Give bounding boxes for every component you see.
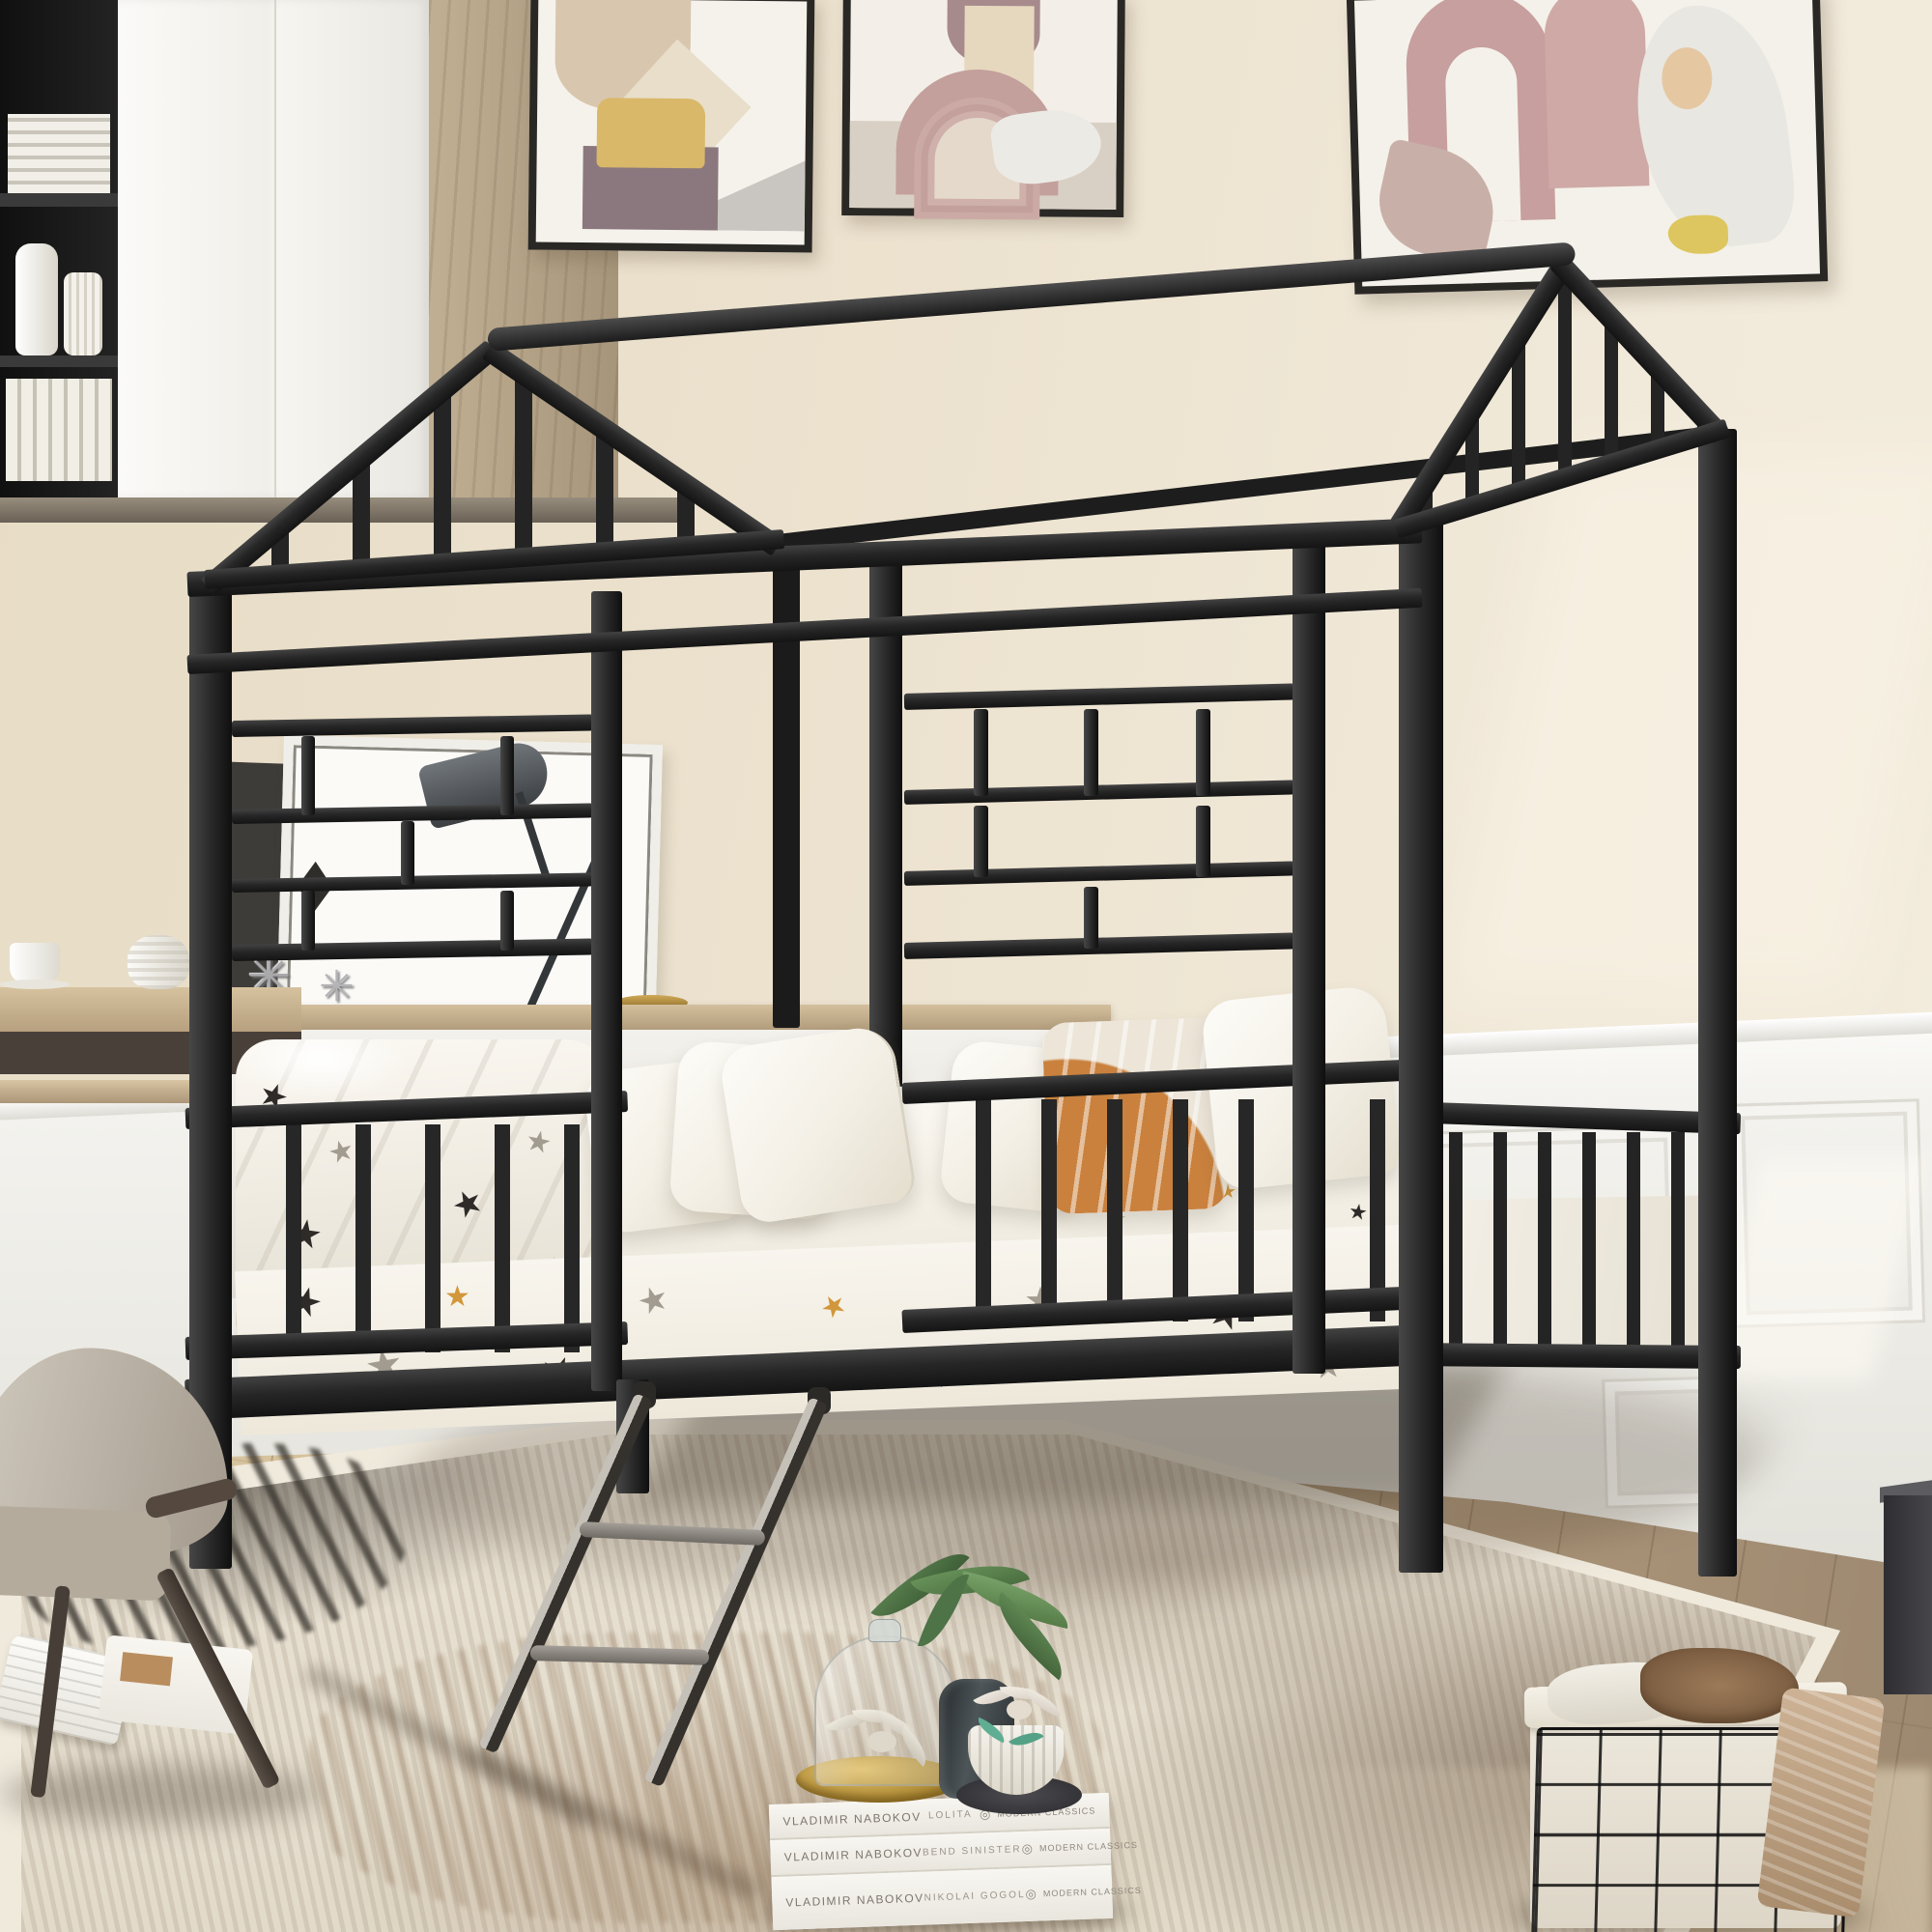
art3-pink-arch-right: [1544, 0, 1650, 188]
book-author: VLADIMIR NABOKOV: [785, 1891, 924, 1910]
footboard-slats: [1418, 1132, 1727, 1354]
footboard-bottom-rail: [1403, 1343, 1741, 1369]
headboard-window-mullion: [500, 891, 514, 951]
desk-shelf-lower: [0, 1080, 191, 1103]
shelf-books-horizontal: [8, 114, 110, 193]
jacks-sculpture-silver: ✳: [319, 966, 355, 1009]
succulent-center: [1007, 1700, 1032, 1719]
desk-top: [0, 987, 301, 1032]
bed-back-left-post: [773, 549, 800, 1028]
window-mullion-right: [1084, 709, 1098, 796]
headboard-window-mullion: [301, 736, 315, 815]
headboard-window-mullion: [301, 891, 315, 951]
window-mullion-right: [1084, 887, 1098, 949]
art1-yellow-figure: [597, 98, 706, 168]
art-frame-3: [1347, 0, 1829, 295]
headboard-window-mullion: [500, 736, 514, 815]
book-stack: VLADIMIR NABOKOV LOLITA ◎MODERN CLASSICS…: [769, 1793, 1113, 1930]
window-mullion-right: [1196, 806, 1210, 877]
cloche-knob: [868, 1619, 901, 1642]
window-mullion-right: [1196, 709, 1210, 796]
art-frame-1: [528, 0, 815, 253]
bed-post-front-right: [1399, 522, 1443, 1573]
pillow-white: [718, 1023, 919, 1226]
shelf-vase-white: [15, 243, 58, 355]
shelf-books-vertical: [6, 379, 112, 481]
nightstand-body: [1884, 1495, 1932, 1694]
desk-vase: [128, 935, 189, 989]
book-title: LOLITA: [928, 1809, 973, 1822]
guardrail-slats-left: [232, 1124, 593, 1352]
shelf-board: [0, 355, 118, 367]
book-author: VLADIMIR NABOKOV: [782, 1809, 922, 1828]
headboard-window-mullion: [401, 821, 414, 885]
cabinet-white: [118, 0, 429, 497]
art3-yellow-shoe: [1667, 214, 1728, 255]
cup-saucer: [0, 980, 70, 989]
publisher-logo-icon: ◎: [1021, 1841, 1034, 1857]
window-mullion-right: [974, 806, 988, 877]
publisher-name: MODERN CLASSICS: [1043, 1886, 1142, 1899]
bed-post-headboard-right: [591, 591, 622, 1391]
shelf-vase-ribbed: [64, 272, 102, 355]
succulent-center: [867, 1731, 896, 1752]
chair-seat: [0, 1506, 172, 1602]
publisher-name: MODERN CLASSICS: [1039, 1840, 1138, 1854]
window-mullion-right: [974, 709, 988, 796]
sideboard-top-wood: [224, 1005, 1111, 1030]
magazine-photo: [120, 1652, 173, 1686]
bed-post-window-right: [1293, 529, 1325, 1374]
guardrail-slats-right: [925, 1099, 1401, 1321]
shelf-board: [0, 193, 118, 207]
cabinet-door-seam: [274, 0, 276, 497]
coffee-cup: [10, 943, 60, 983]
publisher-logo-icon: ◎: [1025, 1887, 1037, 1902]
book-author: VLADIMIR NABOKOV: [784, 1846, 923, 1864]
book-title: NIKOLAI GOGOL: [924, 1889, 1026, 1904]
room-scene: ✳ ✳ ★ ★ ★ ★ ★ ★ ★ ★ ★ ★ ★ ★ ★: [0, 0, 1932, 1932]
book-title: BEND SINISTER: [923, 1844, 1022, 1859]
bed-post-back-right: [1698, 429, 1737, 1577]
art-frame-2: [841, 0, 1125, 217]
